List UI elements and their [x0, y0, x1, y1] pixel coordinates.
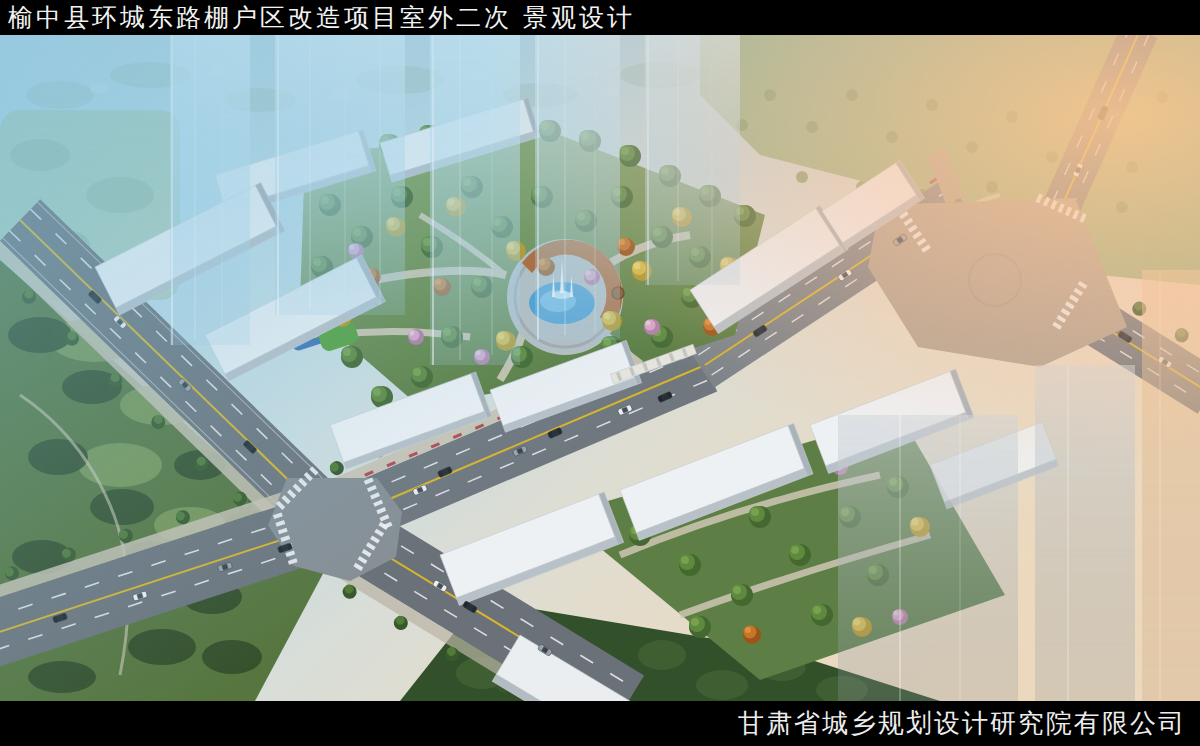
rendering-canvas	[0, 35, 1200, 701]
presentation-board: 榆中县环城东路棚户区改造项目室外二次 景观设计	[0, 0, 1200, 746]
title-bar: 榆中县环城东路棚户区改造项目室外二次 景观设计	[0, 0, 1200, 35]
project-title: 榆中县环城东路棚户区改造项目室外二次 景观设计	[0, 1, 635, 34]
aerial-rendering	[0, 35, 1200, 701]
design-institute-name: 甘肃省城乡规划设计研究院有限公司	[738, 706, 1200, 741]
warm-glow-overlay	[0, 35, 1200, 701]
footer-bar: 甘肃省城乡规划设计研究院有限公司	[0, 701, 1200, 746]
